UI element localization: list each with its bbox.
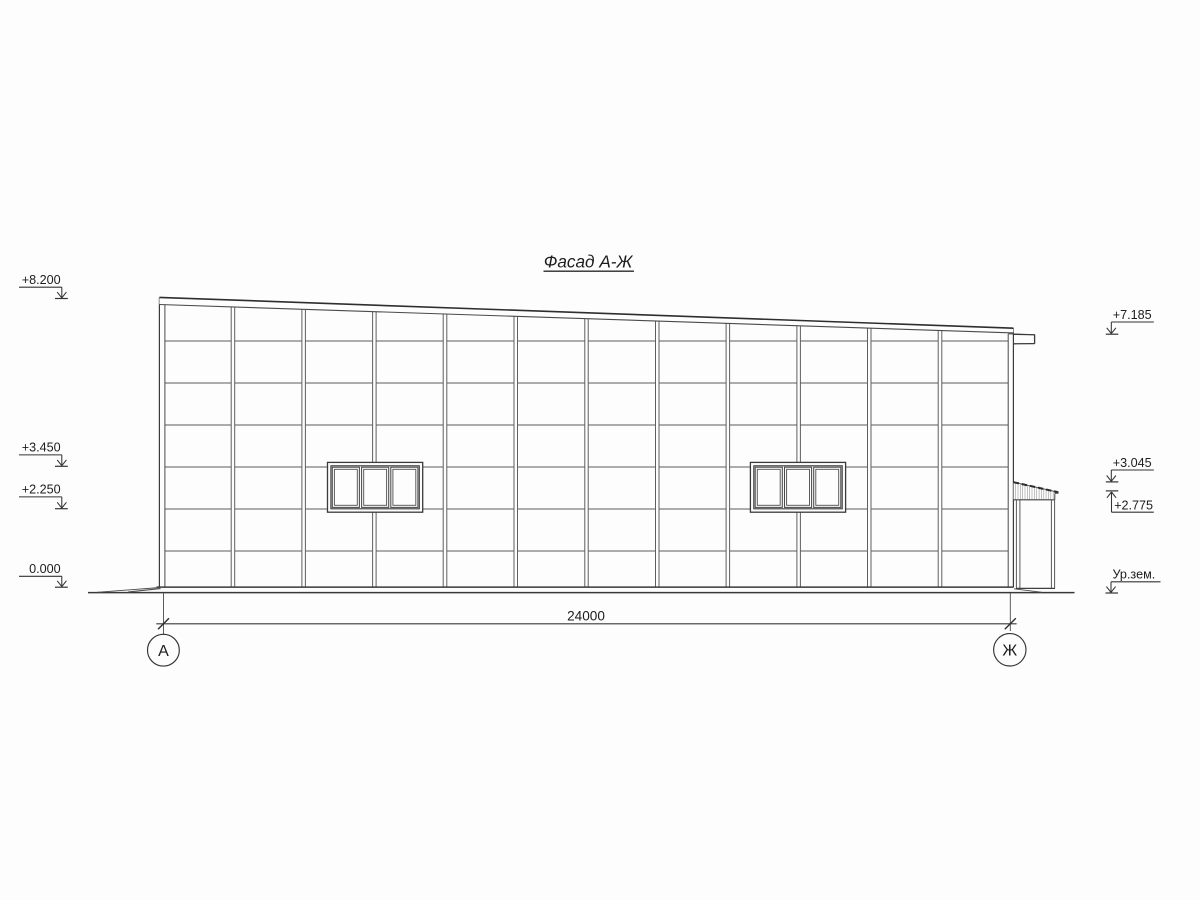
- svg-text:Ур.зем.: Ур.зем.: [1113, 568, 1156, 582]
- svg-text:+8.200: +8.200: [22, 273, 61, 287]
- svg-text:+3.450: +3.450: [22, 441, 61, 455]
- svg-text:+3.045: +3.045: [1113, 456, 1152, 470]
- svg-text:0.000: 0.000: [29, 562, 61, 576]
- svg-text:Фасад А-Ж: Фасад А-Ж: [544, 252, 634, 272]
- svg-text:24000: 24000: [567, 609, 605, 624]
- svg-text:+2.775: +2.775: [1114, 498, 1153, 512]
- svg-text:А: А: [158, 643, 169, 660]
- svg-text:+7.185: +7.185: [1113, 308, 1152, 322]
- svg-text:+2.250: +2.250: [22, 483, 61, 497]
- svg-text:Ж: Ж: [1002, 643, 1017, 660]
